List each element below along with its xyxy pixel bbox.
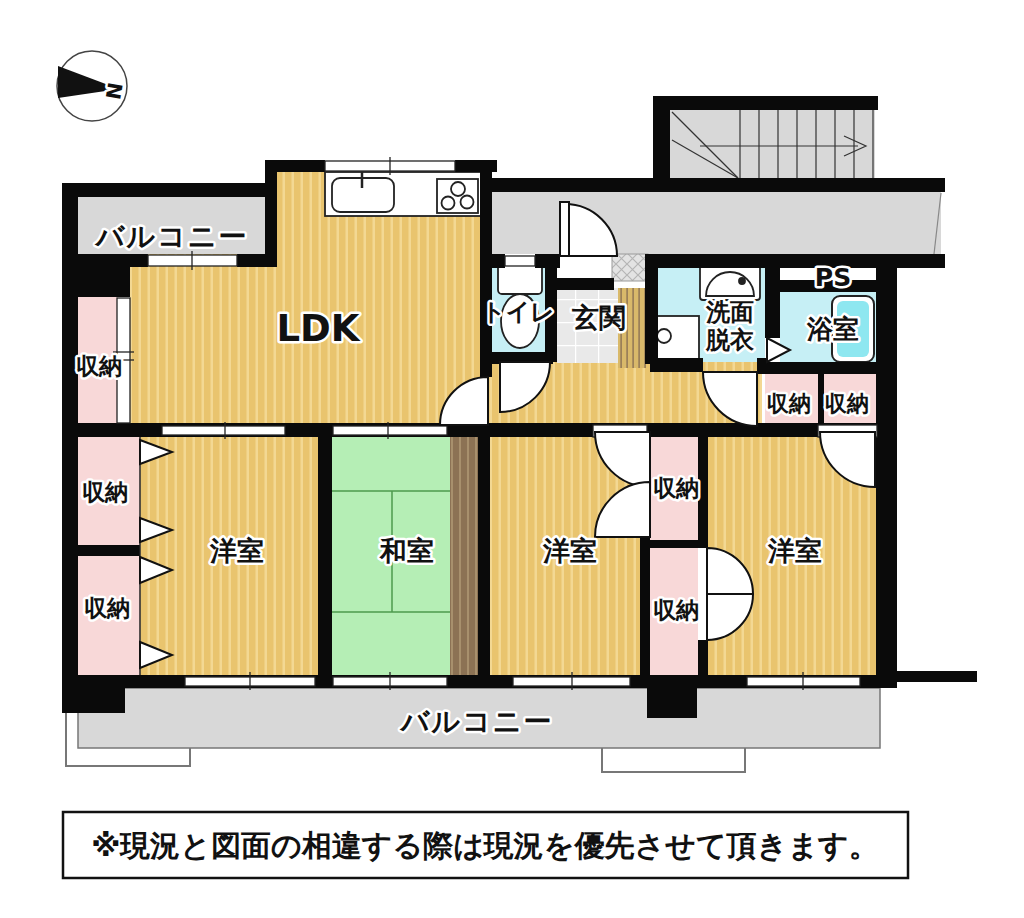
bathroom-label: 浴室 <box>806 314 859 344</box>
toilet-label: トイレ <box>481 298 555 326</box>
western-room-2-label: 洋室 <box>542 535 597 566</box>
storage-label-6: 収納 <box>767 391 811 416</box>
storage-label-4: 収納 <box>653 475 699 501</box>
entrance-label: 玄関 <box>571 302 626 333</box>
japanese-room-label: 和室 <box>379 535 434 566</box>
balcony-bottom-label: バルコニー <box>399 705 554 738</box>
entrance-threshold <box>558 254 612 280</box>
staircase <box>653 96 878 180</box>
entrance-door-leaf <box>560 202 569 256</box>
engawa-strip <box>450 437 478 675</box>
storage-label-1: 収納 <box>76 353 122 379</box>
ldk-washitsu-sliding-door <box>333 426 447 435</box>
storage-column-floor <box>650 430 698 675</box>
notice-box: ※現況と図面の相違する際は現況を優先させて頂きます。 <box>63 812 908 878</box>
floor-plan-svg: N <box>0 0 1024 918</box>
washroom-label-1: 洗面 <box>705 298 754 326</box>
storage-label-3: 収納 <box>84 595 130 621</box>
western-room-3-label: 洋室 <box>767 535 822 566</box>
notice-text: ※現況と図面の相違する際は現況を優先させて頂きます。 <box>91 828 879 863</box>
balcony-top-label: バルコニー <box>94 220 249 253</box>
pipe-space-label: PS <box>815 263 851 292</box>
kitchen-unit <box>325 172 487 216</box>
washing-machine-icon <box>651 316 699 360</box>
western-room-1-label: 洋室 <box>209 535 264 566</box>
compass-north-icon: N <box>57 51 127 121</box>
ldk-label: LDK <box>277 307 361 350</box>
storage-label-7: 収納 <box>825 391 869 416</box>
washroom-label-2: 脱衣 <box>705 326 755 354</box>
storage-label-5: 収納 <box>653 597 699 623</box>
ldk-room1-sliding-door <box>162 426 285 435</box>
toilet-window <box>505 256 535 266</box>
floor-plan-page: N <box>0 0 1024 918</box>
storage-label-2: 収納 <box>82 479 128 505</box>
entrance-porch-hatch <box>612 254 648 281</box>
